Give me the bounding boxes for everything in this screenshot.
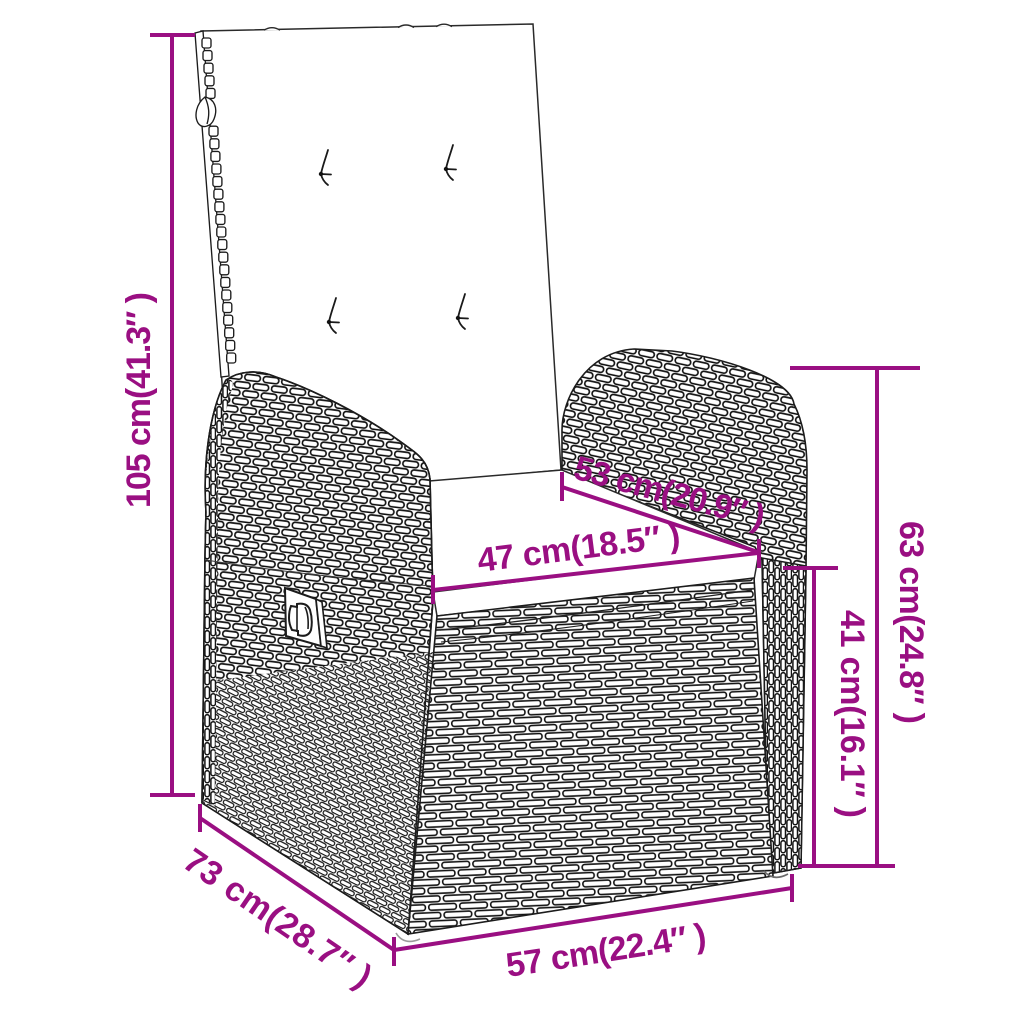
svg-text:105 cm(41.3″ ): 105 cm(41.3″ ) (120, 292, 158, 508)
svg-text:41 cm(16.1″ ): 41 cm(16.1″ ) (833, 610, 871, 818)
svg-text:63 cm(24.8″ ): 63 cm(24.8″ ) (892, 521, 930, 724)
